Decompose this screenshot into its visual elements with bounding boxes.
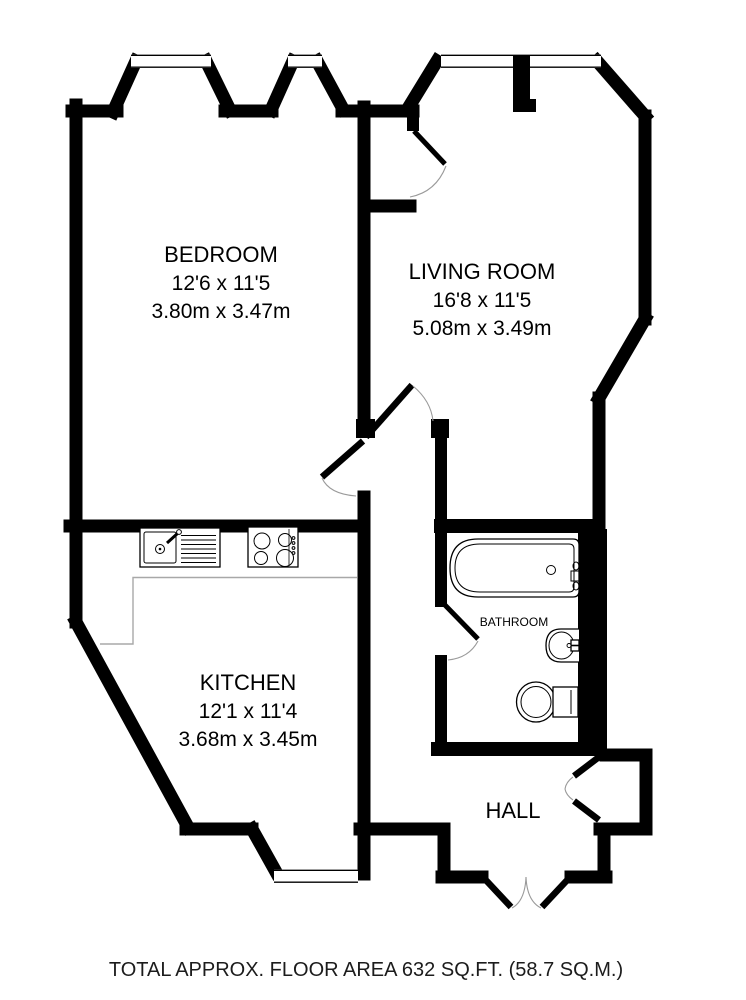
chimney-stub-foot xyxy=(513,99,536,112)
kitchen-door xyxy=(322,441,363,496)
corridor-wall-stub xyxy=(431,419,449,438)
wash-basin xyxy=(546,629,580,662)
living-room-imperial-dims: 16'8 x 11'5 xyxy=(433,289,532,312)
living-room-metric-dims: 5.08m x 3.49m xyxy=(413,317,552,340)
exterior-and-interior-walls xyxy=(70,61,646,877)
kitchen-imperial-dims: 12'1 x 11'4 xyxy=(199,700,298,723)
room-label-living-room: LIVING ROOM 16'8 x 11'5 5.08m x 3.49m xyxy=(409,259,556,340)
bedroom-name: BEDROOM xyxy=(164,242,278,267)
room-label-bedroom: BEDROOM 12'6 x 11'5 3.80m x 3.47m xyxy=(152,242,291,323)
living-room-door xyxy=(366,385,433,437)
kitchen-metric-dims: 3.68m x 3.45m xyxy=(179,728,318,751)
bedroom-imperial-dims: 12'6 x 11'5 xyxy=(172,272,271,295)
total-floor-area-label: TOTAL APPROX. FLOOR AREA 632 SQ.FT. (58.… xyxy=(109,959,623,981)
closet-door-jamb xyxy=(407,112,419,131)
bedroom-bay-window-right xyxy=(288,55,322,69)
living-room-name: LIVING ROOM xyxy=(409,259,556,284)
kitchen-counter xyxy=(100,578,357,645)
hall-name: HALL xyxy=(485,798,540,823)
room-label-kitchen: KITCHEN 12'1 x 11'4 3.68m x 3.45m xyxy=(179,670,318,751)
hall-window xyxy=(274,870,358,884)
bedroom-metric-dims: 3.80m x 3.47m xyxy=(152,300,291,323)
closet-door xyxy=(410,131,446,197)
kitchen-sink-drainer xyxy=(140,528,220,567)
bathroom-right-wall-column xyxy=(578,529,607,752)
hall-side-double-door xyxy=(565,757,599,820)
bedroom-bay-window-left xyxy=(131,55,211,69)
bathroom-door xyxy=(443,603,478,660)
toilet xyxy=(517,682,579,722)
floorplan-page: BEDROOM 12'6 x 11'5 3.80m x 3.47m LIVING… xyxy=(0,0,746,1000)
bathroom-name: BATHROOM xyxy=(480,615,548,629)
front-double-door xyxy=(482,876,571,908)
kitchen-name: KITCHEN xyxy=(200,670,297,695)
floorplan-drawing: BEDROOM 12'6 x 11'5 3.80m x 3.47m LIVING… xyxy=(0,0,746,1000)
bathtub xyxy=(450,539,580,597)
four-burner-hob xyxy=(248,527,298,567)
